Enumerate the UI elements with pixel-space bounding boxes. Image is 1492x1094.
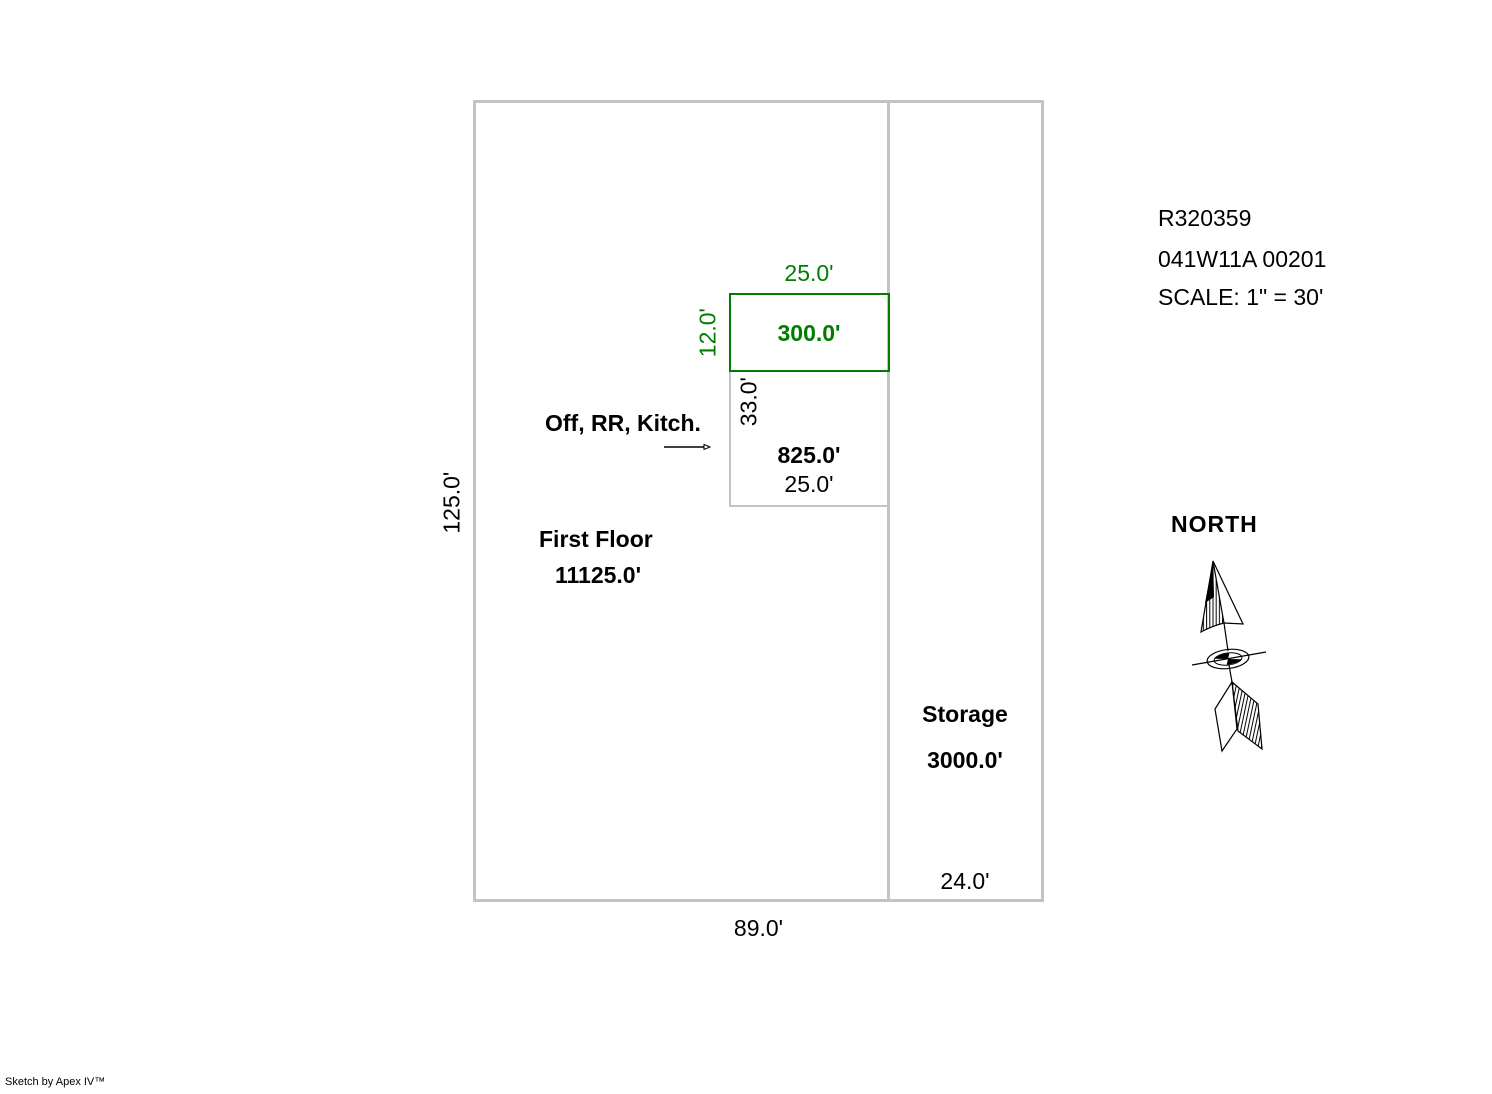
office-addition-left-dim: 33.0'	[736, 372, 761, 432]
storage-label: Storage	[887, 702, 1043, 727]
office-pointer-arrow	[663, 441, 713, 453]
north-label: NORTH	[1171, 512, 1258, 537]
office-addition-bottom-dim: 25.0'	[729, 472, 889, 497]
map-taxlot: 041W11A 00201	[1158, 247, 1326, 272]
green-addition-top-dim: 25.0'	[729, 261, 889, 286]
first-floor-bottom-dim: 89.0'	[473, 916, 1044, 941]
office-addition-area: 825.0'	[729, 443, 889, 468]
apex-sketch-canvas: 25.0' 12.0' 300.0' 33.0' 825.0' 25.0' Of…	[0, 0, 1492, 1094]
account-number: R320359	[1158, 206, 1251, 231]
green-addition-left-dim: 12.0'	[695, 303, 720, 363]
office-addition-label: Off, RR, Kitch.	[545, 411, 701, 436]
storage-area: 3000.0'	[887, 748, 1043, 773]
north-compass-icon	[1180, 553, 1280, 768]
green-addition-area: 300.0'	[729, 321, 889, 346]
first-floor-left-dim: 125.0'	[439, 468, 464, 538]
storage-bottom-dim: 24.0'	[887, 869, 1043, 894]
first-floor-label: First Floor	[539, 527, 653, 552]
apex-watermark: Sketch by Apex IV™	[5, 1077, 105, 1088]
scale-note: SCALE: 1" = 30'	[1158, 285, 1323, 310]
first-floor-area: 11125.0'	[555, 563, 641, 588]
